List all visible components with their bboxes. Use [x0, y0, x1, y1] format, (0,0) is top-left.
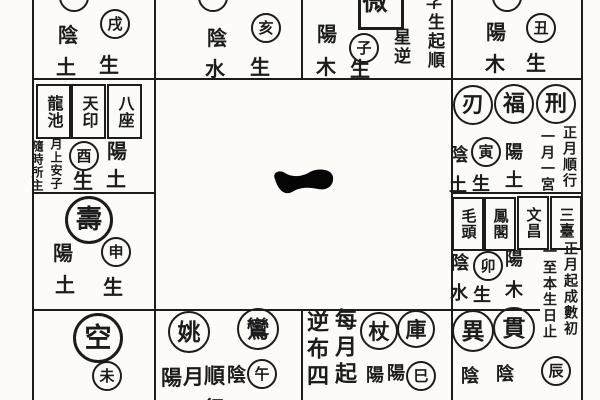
grid-line-h-row2-left	[32, 192, 156, 194]
circled-star-ku: 庫	[397, 310, 435, 348]
branch-circle-shen: 申	[101, 237, 131, 267]
circled-star-guan: 貫	[493, 307, 535, 349]
star-char: 微	[361, 0, 386, 14]
polarity-label: 陰	[58, 25, 78, 45]
star-char: 壽	[76, 207, 102, 233]
sheng-label: 生	[526, 53, 546, 73]
sheng-label: 生	[73, 171, 93, 191]
polarity-label: 陽	[387, 365, 405, 383]
small-note-outer: 隨時所主	[31, 140, 43, 192]
branch-char: 戌	[107, 17, 122, 32]
star-char: 刃	[462, 94, 484, 116]
branch-char: 辰	[548, 364, 563, 379]
branch-char: 未	[99, 369, 114, 384]
branch-circle-si: 巳	[406, 361, 436, 391]
branch-char: 丑	[533, 21, 548, 36]
clipped-branch-circle	[492, 0, 522, 12]
boxed-star-wei: 微	[358, 0, 404, 30]
element-label: 木	[485, 54, 505, 74]
boxed-star-tianyin: 天印	[71, 84, 106, 139]
circled-star-shou: 壽	[65, 196, 113, 244]
polarity-label: 陰	[451, 255, 469, 273]
boxed-star-fengge: 鳳閣	[484, 197, 516, 251]
circled-star-luan: 鸞	[237, 308, 279, 350]
element-label: 土	[449, 177, 467, 195]
branch-circle-chen: 辰	[541, 356, 571, 386]
note-one-month-one-palace: 一月一宮	[540, 129, 554, 193]
star-char: 刑	[545, 93, 567, 115]
branch-circle-you: 酉	[69, 141, 99, 171]
branch-char: 酉	[76, 149, 91, 164]
grid-line-h-row2-right	[451, 192, 583, 194]
polarity-label: 陰	[461, 368, 479, 386]
boxed-star-longchi: 龍池	[36, 84, 71, 139]
boxed-star-maotou: 毛頭	[452, 197, 484, 251]
star-chars: 文昌	[526, 207, 541, 239]
star-char: 貫	[503, 317, 526, 340]
sheng-label: 生	[472, 176, 490, 194]
star-char: 杖	[369, 321, 390, 342]
branch-circle-wei: 未	[92, 361, 122, 391]
branch-circle-yin: 寅	[471, 137, 501, 167]
sheng-label: 生	[350, 59, 370, 79]
circled-star-kong: 空	[73, 313, 123, 363]
clipped-branch-circle	[59, 0, 89, 12]
star-chars: 龍池	[46, 95, 62, 129]
branch-char: 午	[254, 367, 269, 382]
star-char: 異	[462, 320, 485, 343]
note-char: 月	[183, 366, 204, 387]
note-until-birthday: 一至本生日止	[542, 244, 556, 340]
grid-line-v-col1	[154, 0, 156, 400]
note-star-reverse: 星逆	[391, 28, 408, 66]
element-label: 土	[55, 275, 75, 295]
polarity-label: 陽	[486, 22, 506, 42]
grid-line-v-col2-top	[301, 0, 303, 79]
ink-blot	[268, 164, 340, 198]
clipped-note-char: 行	[204, 392, 226, 400]
polarity-label: 陽	[505, 251, 523, 269]
circled-star-zhang: 杖	[360, 312, 398, 350]
star-char: 姚	[178, 321, 201, 344]
polarity-label: 陰	[207, 28, 227, 48]
note-char: 子	[426, 0, 446, 9]
element-label: 土	[505, 172, 523, 190]
star-char: 庫	[406, 319, 427, 340]
branch-circle-hai: 亥	[251, 13, 281, 43]
sheng-label: 生	[103, 277, 123, 297]
sheng-label: 生	[250, 57, 270, 77]
polarity-label: 陽	[317, 24, 337, 44]
branch-char: 子	[356, 41, 371, 56]
polarity-label: 陽	[53, 243, 73, 263]
clipped-branch-circle	[198, 0, 228, 12]
boxed-star-wenchang: 文昌	[517, 196, 549, 250]
circled-star-xing: 刑	[536, 84, 576, 124]
note-char: 順	[204, 365, 225, 386]
star-chars: 天印	[81, 95, 97, 129]
polarity-label: 陽	[366, 367, 384, 385]
note-count-from-first-month: 正月起成數初	[563, 241, 577, 337]
grid-line-v-left	[32, 0, 34, 400]
branch-circle-mao: 卯	[473, 251, 503, 281]
small-note-inner: 月上安子	[50, 138, 62, 190]
star-chars: 鳳閣	[493, 208, 508, 240]
sheng-label: 生	[99, 55, 119, 75]
star-char: 福	[503, 93, 525, 115]
note-char: 陰	[227, 366, 246, 385]
element-label: 土	[106, 169, 126, 189]
branch-char: 申	[108, 245, 123, 260]
polarity-label: 陰	[450, 147, 468, 165]
branch-circle-wu: 午	[247, 359, 277, 389]
star-chars: 三臺	[559, 207, 574, 239]
star-char: 空	[85, 325, 112, 352]
note-char: 行	[204, 392, 226, 400]
polarity-label: 陽	[505, 144, 523, 162]
note-first-month-forward: 正月順行	[562, 125, 576, 189]
scanned-astrology-chart-page: 陰 戌 土 生 陰 亥 水 生 微 陽 子 木 生 星逆 子 生起順 陽 丑 木…	[0, 0, 600, 400]
element-label: 水	[205, 59, 225, 79]
branch-char: 巳	[413, 369, 428, 384]
branch-circle-xu: 戌	[100, 9, 130, 39]
note-char: 陽	[161, 367, 182, 388]
note-rise-forward: 生起順	[425, 13, 442, 70]
circled-star-fu: 福	[494, 84, 534, 124]
note-each-month-start: 每月起	[333, 308, 355, 389]
clipped-note-char: 子	[426, 0, 446, 9]
element-label: 土	[56, 57, 76, 77]
branch-char: 寅	[478, 145, 493, 160]
element-label: 木	[505, 282, 523, 300]
circled-star-yao: 姚	[168, 311, 210, 353]
polarity-label: 陽	[107, 141, 127, 161]
branch-char: 亥	[258, 21, 273, 36]
sheng-label: 生	[473, 287, 491, 305]
element-label: 木	[316, 57, 336, 77]
element-label: 水	[450, 285, 468, 303]
star-char: 鸞	[247, 318, 270, 341]
circled-star-ren: 刃	[453, 85, 493, 125]
grid-line-h-row1	[32, 78, 583, 80]
branch-char: 卯	[480, 259, 495, 274]
star-chars: 八座	[117, 95, 133, 129]
boxed-star-bazuo: 八座	[107, 84, 142, 139]
branch-circle-chou: 丑	[526, 13, 556, 43]
star-chars: 毛頭	[461, 208, 476, 240]
circled-star-yi: 異	[452, 310, 494, 352]
polarity-label: 陰	[496, 366, 514, 384]
note-reverse-spread-four: 逆布四	[305, 310, 327, 391]
